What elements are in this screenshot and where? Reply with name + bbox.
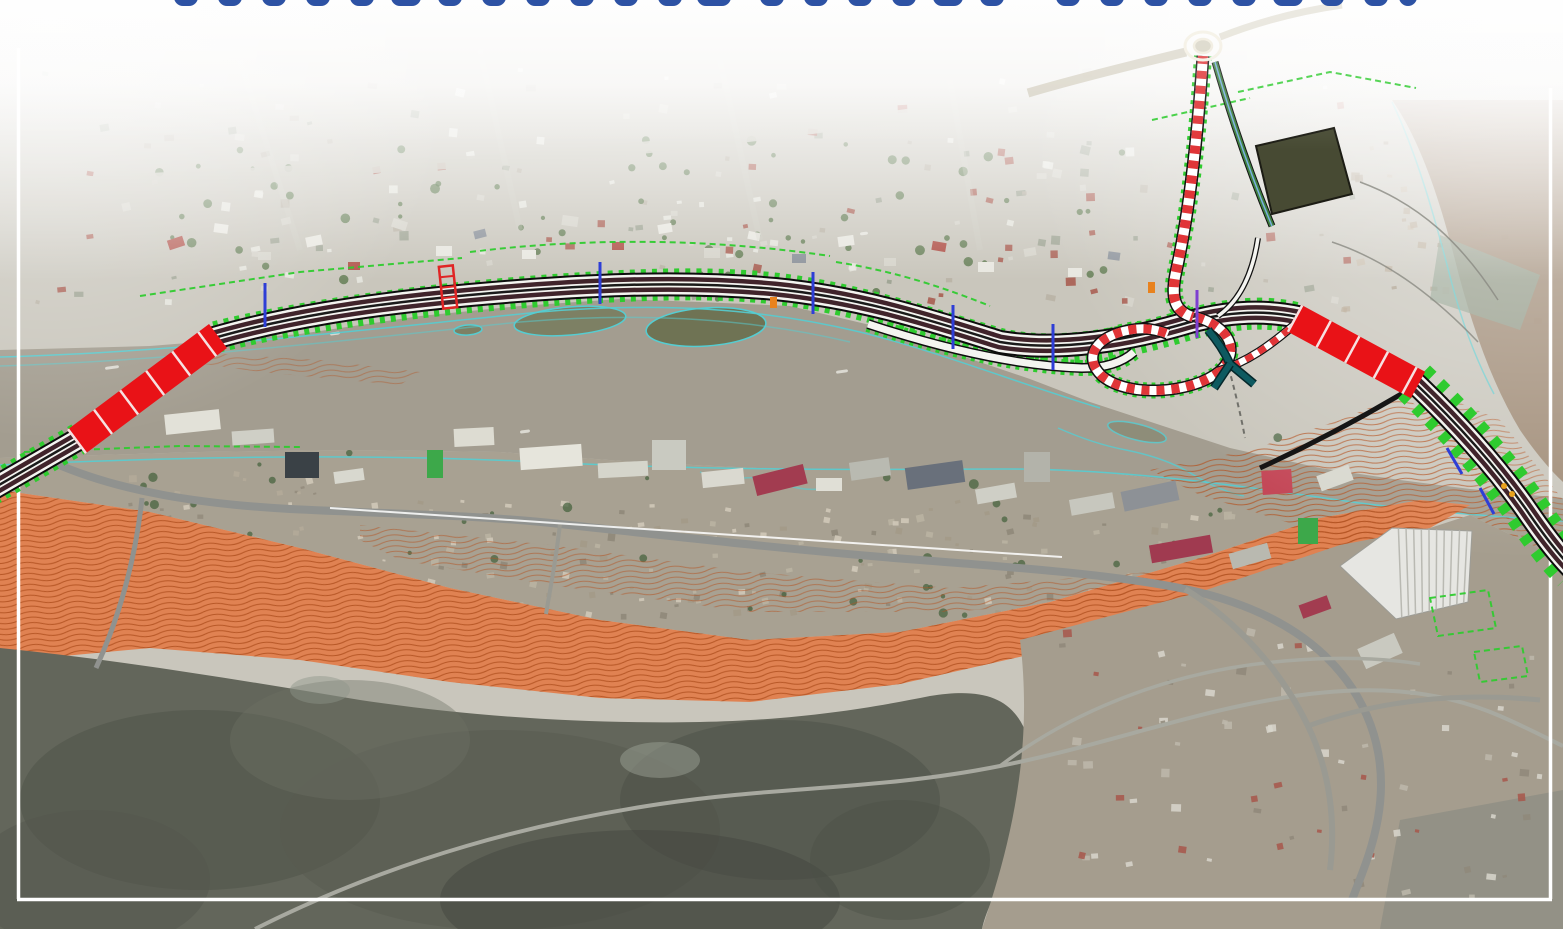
house-speckle-south (589, 592, 596, 599)
house-speckle-south (861, 563, 864, 565)
haze-top-light (0, 0, 1563, 150)
house-speckle-south (744, 523, 749, 527)
house-speckle-br (1530, 656, 1535, 660)
house-speckle-br (1072, 737, 1082, 746)
house-speckle-south (621, 614, 627, 620)
top-haze-light (0, 0, 1563, 150)
house-speckle-br (1442, 725, 1449, 731)
house-speckle-br (1268, 724, 1276, 732)
house-speckle-south (552, 532, 556, 536)
house-speckle-south (607, 533, 615, 541)
house-speckle-br (1093, 672, 1099, 677)
house-speckle-br (1295, 643, 1302, 648)
house-speckle-south (710, 521, 716, 527)
house-speckle-south (299, 526, 304, 531)
house-speckle-br (1518, 793, 1526, 801)
house-speckle-br (1083, 761, 1093, 769)
house-speckle-br (1519, 769, 1529, 777)
house-speckle-br (1059, 643, 1066, 648)
house-speckle-south (293, 530, 299, 535)
machinery-dot (1509, 491, 1515, 497)
house-speckle-south (660, 612, 668, 619)
house-speckle-br (1317, 829, 1322, 833)
house-speckle-br (1091, 853, 1098, 859)
house-speckle-br (1205, 689, 1215, 696)
house-speckle-south (732, 529, 736, 533)
house-speckle-south (712, 553, 718, 558)
house-speckle-south (868, 563, 873, 566)
house-speckle-br (1523, 814, 1531, 820)
house-speckle-br (1498, 706, 1504, 711)
mountain-shade (620, 742, 700, 778)
house-speckle-br (1537, 774, 1543, 780)
house-speckle-br (1486, 873, 1496, 880)
house-speckle-south (914, 569, 920, 573)
orange-marker (1148, 282, 1155, 293)
house-speckle-br (1464, 866, 1471, 873)
house-speckle-south (639, 598, 644, 601)
tree-dot (1113, 561, 1120, 568)
house-speckle-south (580, 540, 588, 547)
house-speckle-br (1116, 795, 1124, 801)
machinery-dot (1501, 483, 1507, 489)
house-speckle-br (1171, 804, 1181, 812)
house-speckle-br (1063, 629, 1072, 637)
house-speckle-br (1161, 769, 1170, 778)
orange-marker (770, 297, 777, 308)
title-letter-fragment (697, 0, 731, 6)
tree-dot (962, 612, 968, 618)
house-speckle-br (1277, 643, 1283, 649)
mountain-shade (810, 800, 990, 920)
house-speckle-br (1251, 795, 1258, 802)
house-speckle-br (1361, 775, 1367, 781)
house-speckle-br (1485, 754, 1492, 761)
house-speckle-br (1224, 722, 1232, 729)
masterplan-aerial-map (0, 0, 1563, 929)
map-canvas (0, 0, 1563, 929)
mountain-shade (290, 676, 350, 704)
mountain-shade (230, 680, 470, 800)
house-speckle-br (1068, 760, 1077, 766)
house-speckle-br (1509, 684, 1514, 689)
house-speckle-br (1178, 846, 1187, 854)
house-speckle-br (1447, 671, 1452, 675)
house-speckle-br (1276, 843, 1283, 850)
house-speckle-br (1130, 799, 1138, 804)
house-speckle-south (638, 522, 645, 527)
house-speckle-br (1342, 805, 1348, 811)
house-speckle-br (1393, 829, 1401, 836)
